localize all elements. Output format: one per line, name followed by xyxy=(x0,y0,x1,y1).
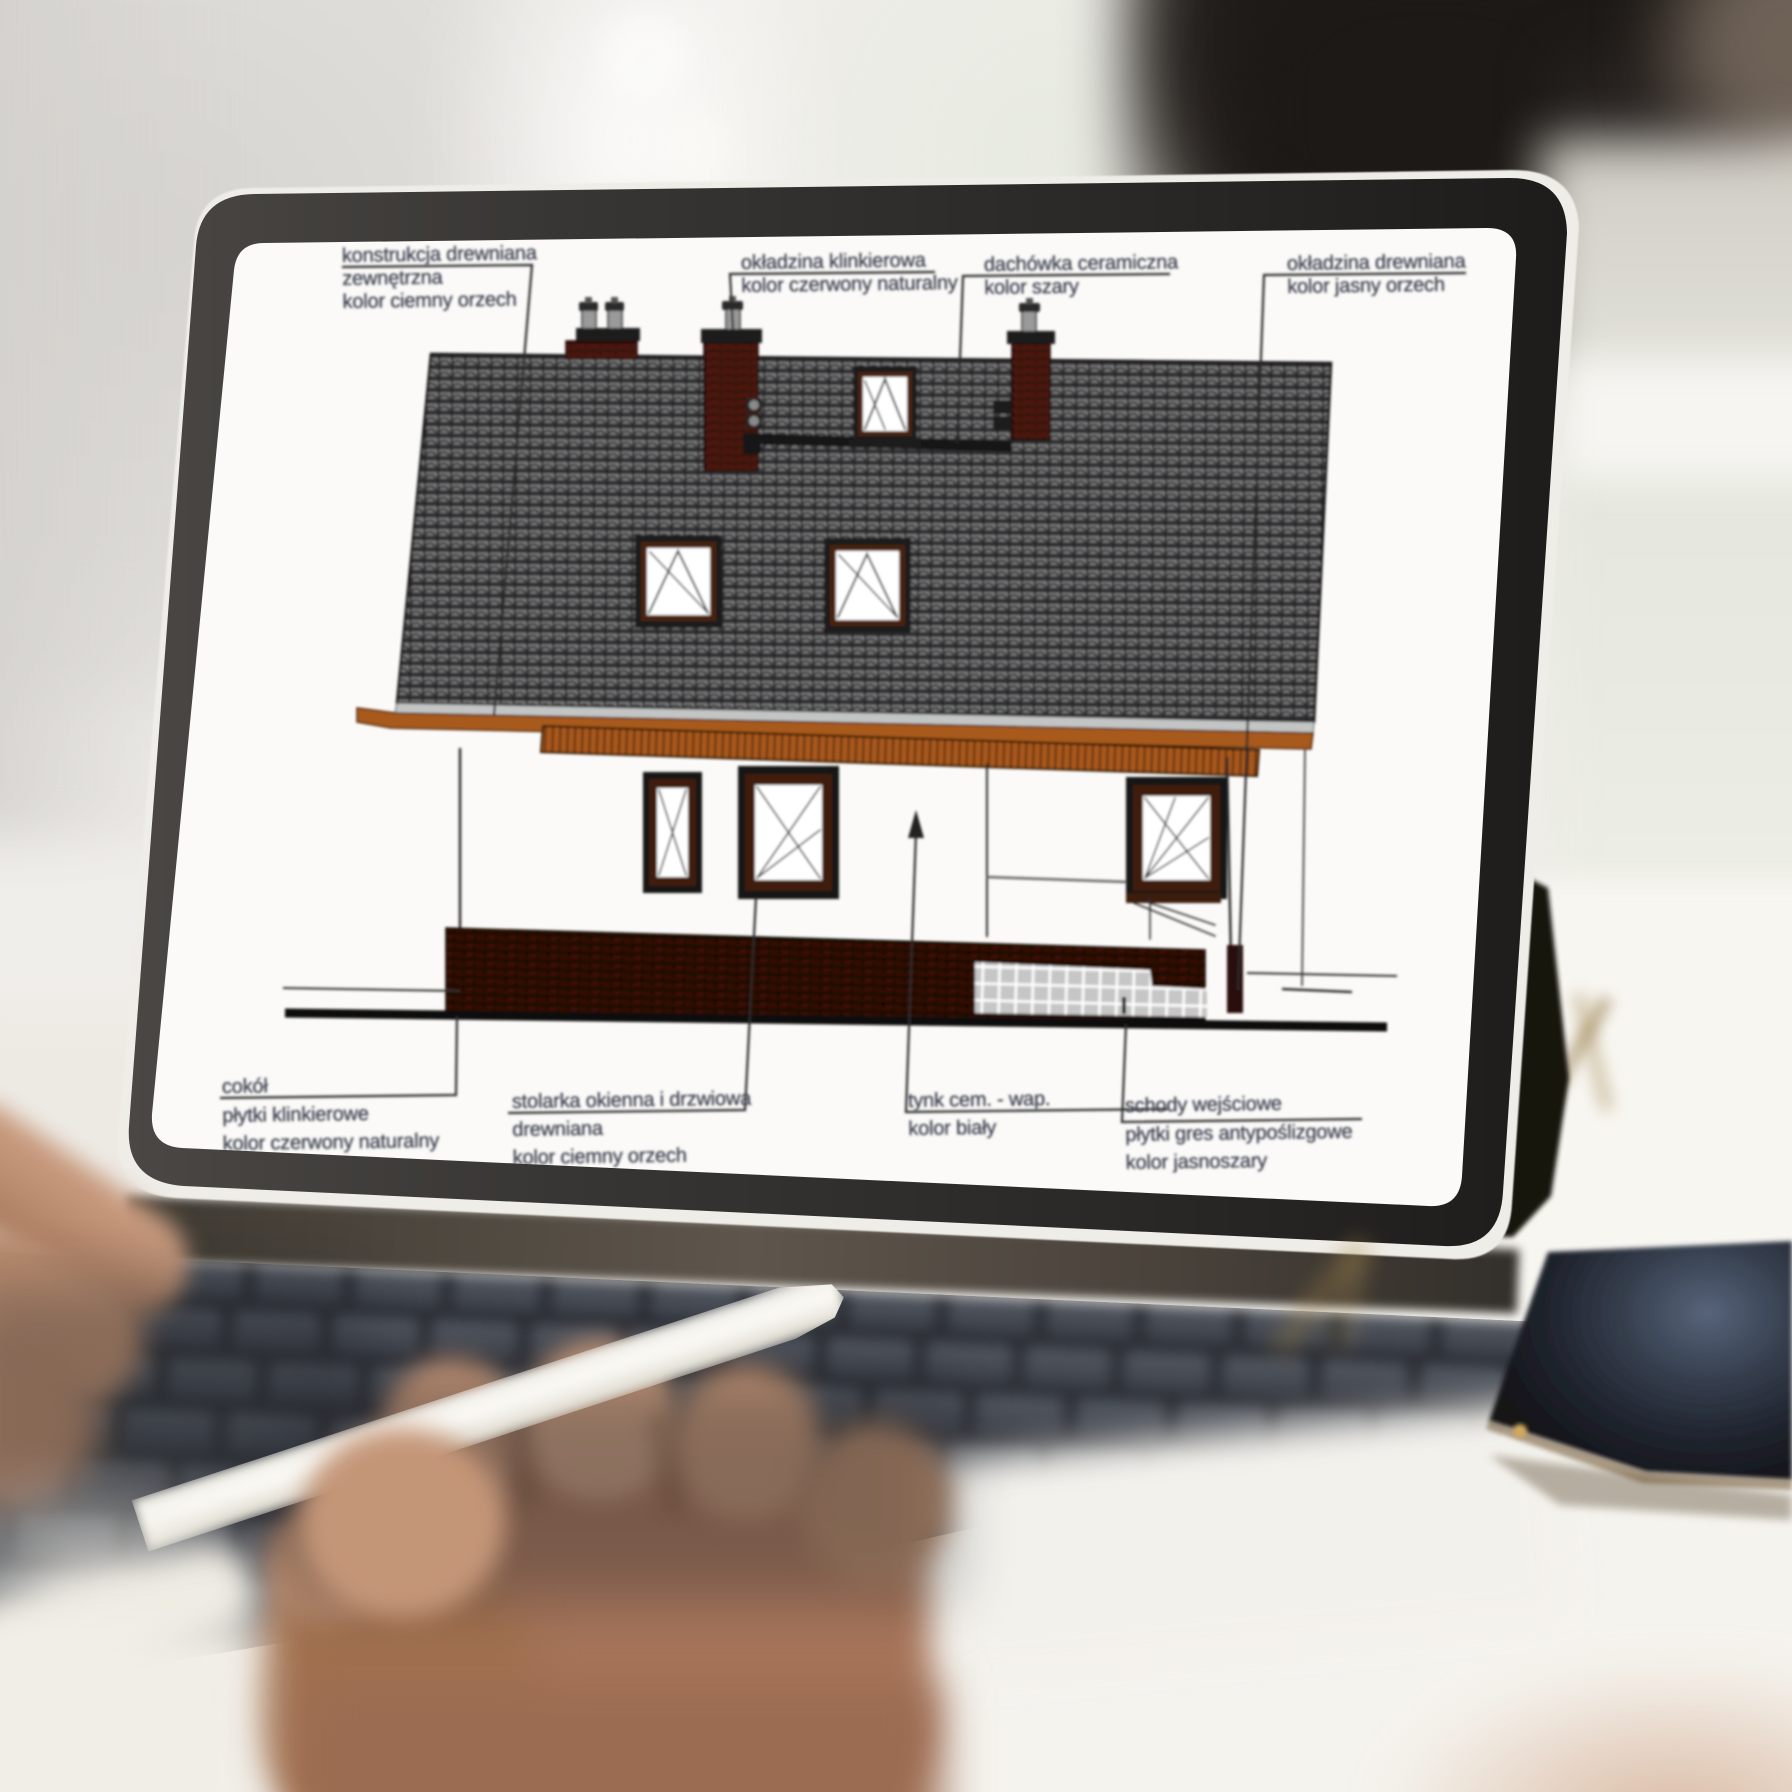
svg-text:tynk cem. - wap.: tynk cem. - wap. xyxy=(908,1088,1051,1112)
svg-text:zewnętrzna: zewnętrzna xyxy=(342,267,444,290)
svg-text:okładzina klinkierowa: okładzina klinkierowa xyxy=(741,249,927,274)
svg-text:kolor jasny orzech: kolor jasny orzech xyxy=(1287,274,1445,298)
svg-text:okładzina drewniana: okładzina drewniana xyxy=(1287,250,1467,275)
svg-text:płytki klinkierowe: płytki klinkierowe xyxy=(222,1103,369,1127)
svg-text:stolarka okienna i drzwiowa: stolarka okienna i drzwiowa xyxy=(512,1088,753,1113)
svg-text:kolor ciemny orzech: kolor ciemny orzech xyxy=(513,1145,687,1169)
svg-text:cokół: cokół xyxy=(222,1075,269,1098)
svg-text:drewniana: drewniana xyxy=(512,1118,604,1141)
svg-text:kolor ciemny orzech: kolor ciemny orzech xyxy=(342,289,516,313)
svg-text:konstrukcja drewniana: konstrukcja drewniana xyxy=(342,242,538,267)
svg-text:płytki gres antypoślizgowe: płytki gres antypoślizgowe xyxy=(1125,1121,1352,1146)
svg-text:schody wejściowe: schody wejściowe xyxy=(1125,1093,1282,1117)
svg-text:kolor biały: kolor biały xyxy=(908,1117,996,1140)
svg-text:kolor szary: kolor szary xyxy=(984,276,1079,299)
svg-text:dachówka ceramiczna: dachówka ceramiczna xyxy=(984,251,1179,276)
svg-text:kolor jasnoszary: kolor jasnoszary xyxy=(1126,1150,1268,1174)
svg-text:kolor czerwony naturalny: kolor czerwony naturalny xyxy=(741,272,958,297)
svg-text:kolor czerwony naturalny: kolor czerwony naturalny xyxy=(223,1130,440,1155)
